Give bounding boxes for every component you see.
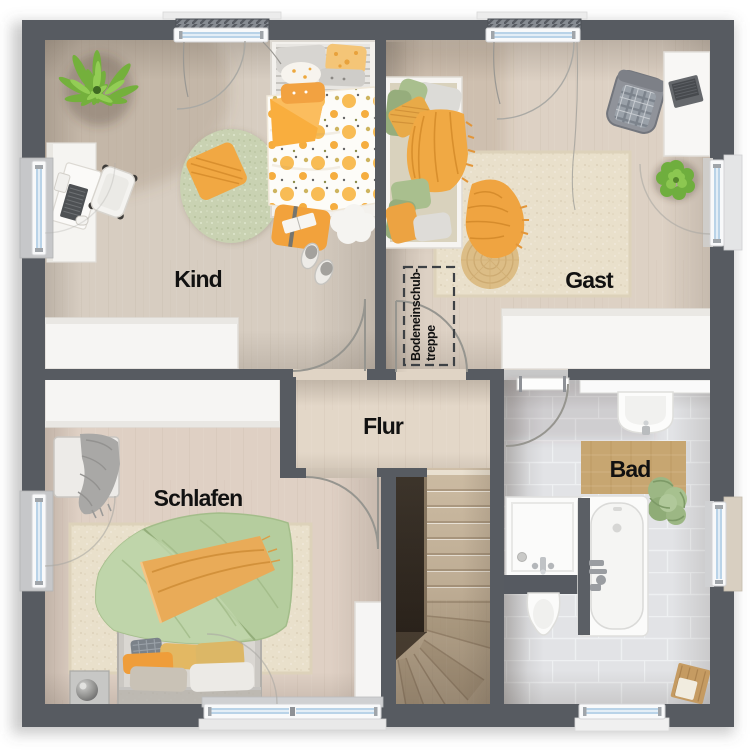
svg-text:Bodeneinschub-: Bodeneinschub- [409, 268, 423, 361]
svg-text:Bad: Bad [610, 456, 651, 482]
svg-text:Flur: Flur [363, 413, 404, 439]
svg-text:Gast: Gast [565, 267, 614, 293]
svg-text:Schlafen: Schlafen [154, 485, 243, 511]
svg-text:treppe: treppe [424, 325, 438, 361]
svg-text:Kind: Kind [174, 266, 222, 292]
